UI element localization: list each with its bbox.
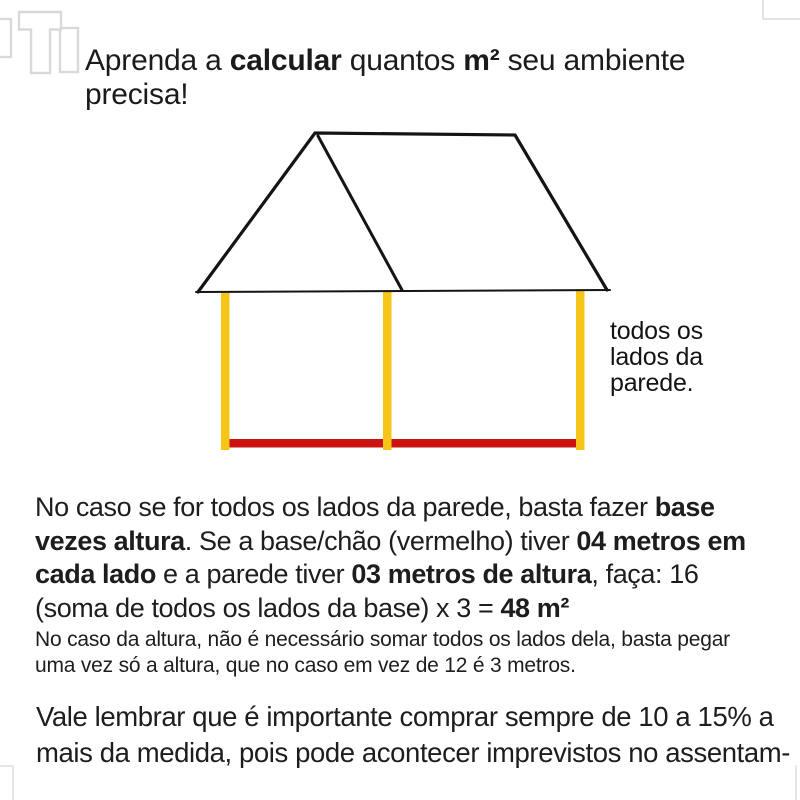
watermark-frame-bottom-right [795, 765, 800, 800]
p1-segment: No caso se for todos os lados da parede,… [35, 492, 655, 522]
p1-bold-result: 48 m² [500, 593, 569, 623]
logo-back-square-right [60, 28, 78, 72]
p1-segment: . Se a base/chão (vermelho) tiver [185, 526, 577, 556]
p1-bold-04-metros: 04 metros em [576, 526, 745, 556]
page-title: Aprenda a calcular quantos m² seu ambien… [85, 44, 785, 112]
wall-post-right [576, 291, 585, 450]
diagram-label-line: parede. [610, 370, 703, 396]
logo-back-square-left [0, 19, 11, 57]
p1-bold-cada-lado: cada lado [35, 559, 156, 589]
wall-post-left [221, 291, 230, 450]
brand-t-logo-icon [0, 0, 92, 86]
roof-inner-slope [318, 136, 402, 290]
p3-line: Vale lembrar que é importante comprar se… [36, 699, 791, 735]
p1-bold-base: base [655, 492, 715, 522]
wall-post-middle [383, 291, 392, 450]
diagram-label-line: lados da [610, 344, 703, 370]
p3-line: mais da medida, pois pode acontecer impr… [36, 735, 791, 771]
watermark-frame-bottom-left [0, 765, 14, 800]
title-bold-calcular: calcular [230, 44, 342, 77]
p2-line: uma vez só a altura, que no caso em vez … [35, 653, 790, 679]
p1-bold-03-metros: 03 metros de altura [351, 559, 591, 589]
p2-line: No caso da altura, não é necessário soma… [35, 627, 790, 653]
p1-segment: e a parede tiver [156, 559, 351, 589]
p1-bold-vezes-altura: vezes altura [35, 526, 185, 556]
diagram-label-line: todos os [610, 318, 703, 344]
infographic-card: Aprenda a calcular quantos m² seu ambien… [0, 0, 800, 800]
title-bold-m2: m² [463, 44, 499, 77]
title-segment: Aprenda a [85, 44, 230, 77]
logo-t-outline [19, 12, 61, 73]
tip-paragraph: Vale lembrar que é importante comprar se… [36, 699, 791, 771]
title-segment: quantos [342, 44, 464, 77]
wall-posts [221, 291, 585, 450]
note-paragraph: No caso da altura, não é necessário soma… [35, 627, 790, 679]
roof-slopes [198, 133, 607, 292]
base-red-line [227, 439, 577, 448]
p1-segment: , faça: 16 [591, 559, 698, 589]
roof-outline [196, 133, 610, 292]
watermark-frame-top-right [762, 0, 800, 20]
roof-eave-line [196, 290, 610, 292]
explanation-paragraph: No caso se for todos os lados da parede,… [35, 491, 790, 625]
p1-segment: (soma de todos os lados da base) x 3 = [35, 593, 500, 623]
house-diagram [140, 120, 660, 460]
diagram-label: todos os lados da parede. [610, 318, 703, 396]
